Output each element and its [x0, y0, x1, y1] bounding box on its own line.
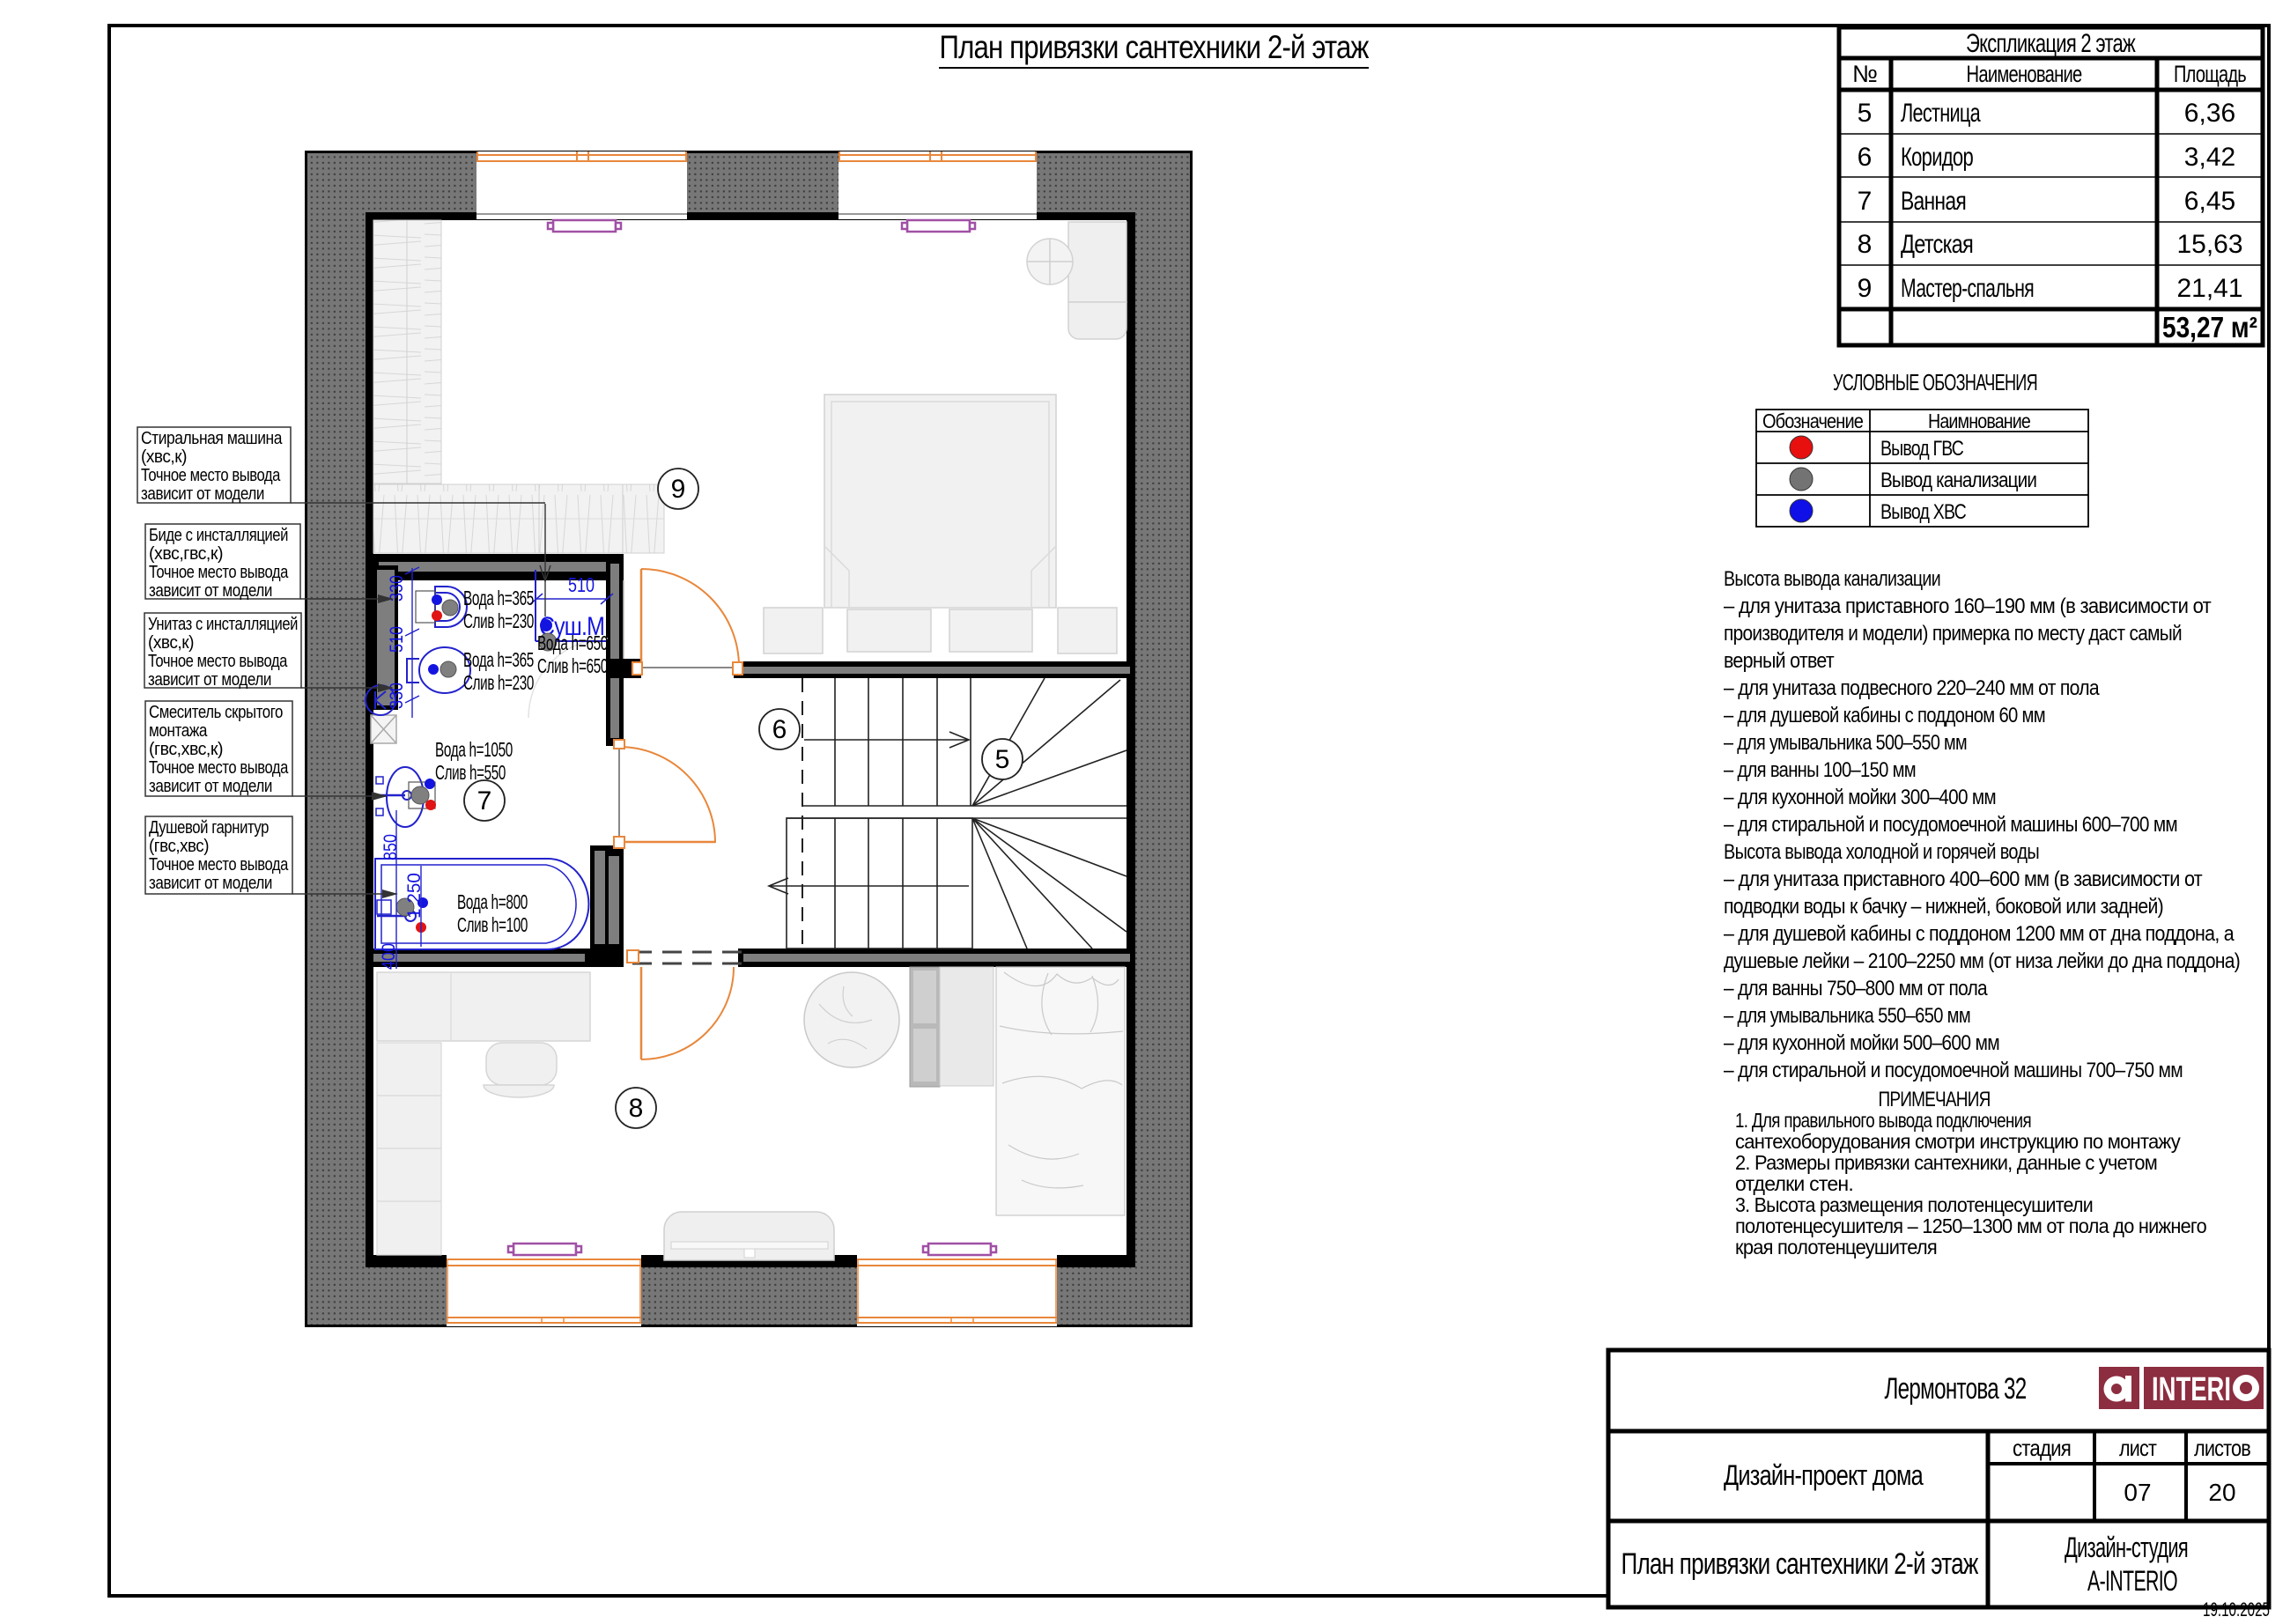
svg-text:– для душевой кабины с поддоно: – для душевой кабины с поддоном 1200 мм … [1724, 922, 2235, 946]
svg-text:20: 20 [2208, 1479, 2235, 1506]
svg-text:53,27 м²: 53,27 м² [2162, 311, 2257, 343]
svg-text:Точное место вывода: Точное место вывода [149, 855, 289, 875]
svg-text:3,42: 3,42 [2184, 143, 2235, 172]
svg-text:9: 9 [671, 475, 686, 504]
svg-text:Стиральная машина: Стиральная машина [141, 429, 283, 448]
svg-text:Мастер-спальня: Мастер-спальня [1901, 274, 2034, 303]
svg-text:Слив h=230: Слив h=230 [463, 609, 534, 632]
svg-text:850: 850 [380, 834, 401, 860]
svg-text:Точное место вывода: Точное место вывода [149, 563, 289, 582]
svg-text:– для унитаза приставного 160–: – для унитаза приставного 160–190 мм (в … [1724, 594, 2212, 618]
svg-text:Вывод ХВС: Вывод ХВС [1880, 500, 1967, 524]
svg-text:– для умывальника 550–650 мм: – для умывальника 550–650 мм [1724, 1004, 1970, 1028]
svg-text:УСЛОВНЫЕ ОБОЗНАЧЕНИЯ: УСЛОВНЫЕ ОБОЗНАЧЕНИЯ [1833, 369, 2037, 395]
svg-text:Вывод канализации: Вывод канализации [1880, 469, 2036, 492]
svg-text:(хвс,к): (хвс,к) [148, 633, 194, 653]
svg-text:Наименование: Наименование [1967, 61, 2082, 87]
svg-text:Слив h=650: Слив h=650 [537, 654, 608, 677]
svg-text:– для кухонной мойки 300–400 м: – для кухонной мойки 300–400 мм [1724, 786, 1996, 809]
svg-text:– для душевой кабины с поддоно: – для душевой кабины с поддоном 60 мм [1724, 704, 2045, 727]
svg-text:Душевой гарнитур: Душевой гарнитур [149, 818, 269, 838]
svg-text:(хвс,гвс,к): (хвс,гвс,к) [149, 544, 223, 564]
svg-text:Вывод ГВС: Вывод ГВС [1880, 437, 1964, 461]
svg-text:Обозначение: Обозначение [1762, 410, 1863, 432]
svg-text:15,63: 15,63 [2176, 230, 2242, 259]
svg-text:1 250: 1 250 [404, 873, 425, 919]
svg-text:верный ответ: верный ответ [1724, 649, 1835, 673]
svg-text:зависит от модели: зависит от модели [149, 777, 272, 796]
svg-text:330: 330 [387, 575, 407, 602]
svg-text:9: 9 [1858, 274, 1873, 303]
svg-text:Лермонтова 32: Лермонтова 32 [1885, 1372, 2027, 1406]
svg-text:(хвс,к): (хвс,к) [141, 447, 187, 467]
svg-text:План привязки сантехники 2-й э: План привязки сантехники 2-й этаж [940, 29, 1370, 65]
svg-text:07: 07 [2124, 1479, 2151, 1506]
svg-text:– для стиральной и посудомоечн: – для стиральной и посудомоечной машины … [1724, 1059, 2183, 1082]
svg-text:монтажа: монтажа [149, 721, 208, 741]
svg-text:6,36: 6,36 [2184, 99, 2235, 128]
svg-text:510: 510 [387, 626, 407, 653]
svg-text:Смеситель скрытого: Смеситель скрытого [149, 703, 283, 722]
svg-text:– для стиральной и посудомоечн: – для стиральной и посудомоечной машины … [1724, 813, 2177, 837]
svg-text:– для унитаза приставного 400–: – для унитаза приставного 400–600 мм (в … [1724, 867, 2203, 891]
svg-text:Лестница: Лестница [1901, 99, 1981, 128]
svg-text:полотенцесушителя – 1250–1300: полотенцесушителя – 1250–1300 мм от пола… [1735, 1214, 2206, 1237]
svg-text:зависит от модели: зависит от модели [149, 874, 272, 893]
svg-text:Ванная: Ванная [1901, 187, 1966, 216]
svg-text:Слив h=230: Слив h=230 [463, 671, 534, 694]
svg-text:зависит от модели: зависит от модели [141, 484, 264, 504]
svg-text:– для унитаза подвесного 220–2: – для унитаза подвесного 220–240 мм от п… [1724, 676, 2100, 700]
svg-text:Слив h=550: Слив h=550 [435, 761, 506, 784]
svg-text:6: 6 [772, 715, 787, 744]
svg-text:330: 330 [387, 683, 407, 709]
svg-text:Точное место вывода: Точное место вывода [141, 466, 281, 485]
svg-text:душевые лейки – 2100–2250 мм (: душевые лейки – 2100–2250 мм (от низа ле… [1724, 949, 2240, 973]
svg-text:8: 8 [629, 1094, 644, 1123]
svg-text:5: 5 [995, 745, 1010, 774]
svg-text:Слив h=100: Слив h=100 [457, 913, 528, 936]
svg-text:Дизайн-проект дома: Дизайн-проект дома [1724, 1459, 1924, 1491]
svg-text:(гвс,хвс): (гвс,хвс) [149, 837, 209, 856]
svg-text:21,41: 21,41 [2176, 274, 2242, 303]
svg-text:Коридор: Коридор [1901, 143, 1973, 172]
svg-text:400: 400 [379, 943, 399, 970]
svg-text:INTERI: INTERI [2152, 1371, 2231, 1408]
svg-text:– для ванны 100–150 мм: – для ванны 100–150 мм [1724, 758, 1916, 782]
svg-text:1. Для правильного вывода подк: 1. Для правильного вывода подключения [1735, 1109, 2031, 1132]
svg-text:зависит от модели: зависит от модели [149, 581, 272, 601]
svg-text:8: 8 [1858, 230, 1873, 259]
svg-text:– для ванны 750–800 мм от пола: – для ванны 750–800 мм от пола [1724, 977, 1988, 1000]
svg-text:A-INTERIO: A-INTERIO [2087, 1565, 2177, 1597]
svg-text:Унитаз с инсталляцией: Унитаз с инсталляцией [148, 615, 298, 634]
svg-text:Высота вывода холодной и горяч: Высота вывода холодной и горячей воды [1724, 840, 2039, 864]
svg-text:6,45: 6,45 [2184, 187, 2235, 216]
svg-text:ПРИМЕЧАНИЯ: ПРИМЕЧАНИЯ [1879, 1088, 1991, 1111]
svg-text:Детская: Детская [1901, 230, 1973, 259]
svg-text:7: 7 [1858, 187, 1873, 216]
svg-text:Вода h=650: Вода h=650 [537, 631, 608, 654]
svg-text:7: 7 [477, 786, 492, 816]
svg-text:510: 510 [568, 573, 595, 596]
svg-text:(гвс,хвс,к): (гвс,хвс,к) [149, 740, 223, 759]
svg-text:Вода h=1050: Вода h=1050 [435, 738, 513, 761]
svg-text:19.10.2025: 19.10.2025 [2203, 1598, 2270, 1620]
svg-text:Высота вывода канализации: Высота вывода канализации [1724, 567, 1940, 591]
svg-text:лист: лист [2119, 1435, 2157, 1461]
svg-text:– для кухонной мойки 500–600 м: – для кухонной мойки 500–600 мм [1724, 1031, 1999, 1055]
svg-text:Экспликация 2 этаж: Экспликация 2 этаж [1966, 29, 2136, 58]
svg-text:Точное место вывода: Точное место вывода [149, 758, 289, 778]
svg-text:Биде с инсталляцией: Биде с инсталляцией [149, 526, 288, 545]
svg-text:стадия: стадия [2013, 1435, 2071, 1461]
svg-text:Вода h=365: Вода h=365 [463, 648, 534, 671]
svg-text:№: № [1852, 61, 1877, 87]
svg-text:сантехоборудования смотри инст: сантехоборудования смотри инструкцию по … [1735, 1130, 2181, 1153]
svg-text:3. Высота размещения полотенце: 3. Высота размещения полотенцесушители [1735, 1193, 2093, 1216]
svg-text:отделки стен.: отделки стен. [1735, 1172, 1853, 1195]
svg-text:Вода h=800: Вода h=800 [457, 890, 528, 913]
svg-text:Дизайн-студия: Дизайн-студия [2065, 1532, 2188, 1563]
svg-text:5: 5 [1858, 99, 1873, 128]
svg-text:края полотенцеушителя: края полотенцеушителя [1735, 1236, 1937, 1259]
svg-text:План привязки сантехники 2-й э: План привязки сантехники 2-й этаж [1621, 1547, 1979, 1581]
svg-text:зависит от модели: зависит от модели [148, 670, 271, 690]
svg-text:листов: листов [2194, 1435, 2250, 1461]
svg-text:Площадь: Площадь [2174, 61, 2246, 87]
svg-text:2. Размеры привязки сантехники: 2. Размеры привязки сантехники, данные с… [1735, 1151, 2157, 1174]
svg-text:6: 6 [1858, 143, 1873, 172]
svg-text:Наимнование: Наимнование [1928, 410, 2030, 432]
svg-text:Точное место вывода: Точное место вывода [148, 652, 288, 671]
svg-text:Вода h=365: Вода h=365 [463, 587, 534, 609]
svg-text:производителя и модели) пример: производителя и модели) примерка по мест… [1724, 622, 2182, 646]
svg-text:подводки воды к бачку – нижней: подводки воды к бачку – нижней, боковой … [1724, 895, 2163, 919]
svg-text:– для умывальника 500–550 мм: – для умывальника 500–550 мм [1724, 731, 1967, 755]
